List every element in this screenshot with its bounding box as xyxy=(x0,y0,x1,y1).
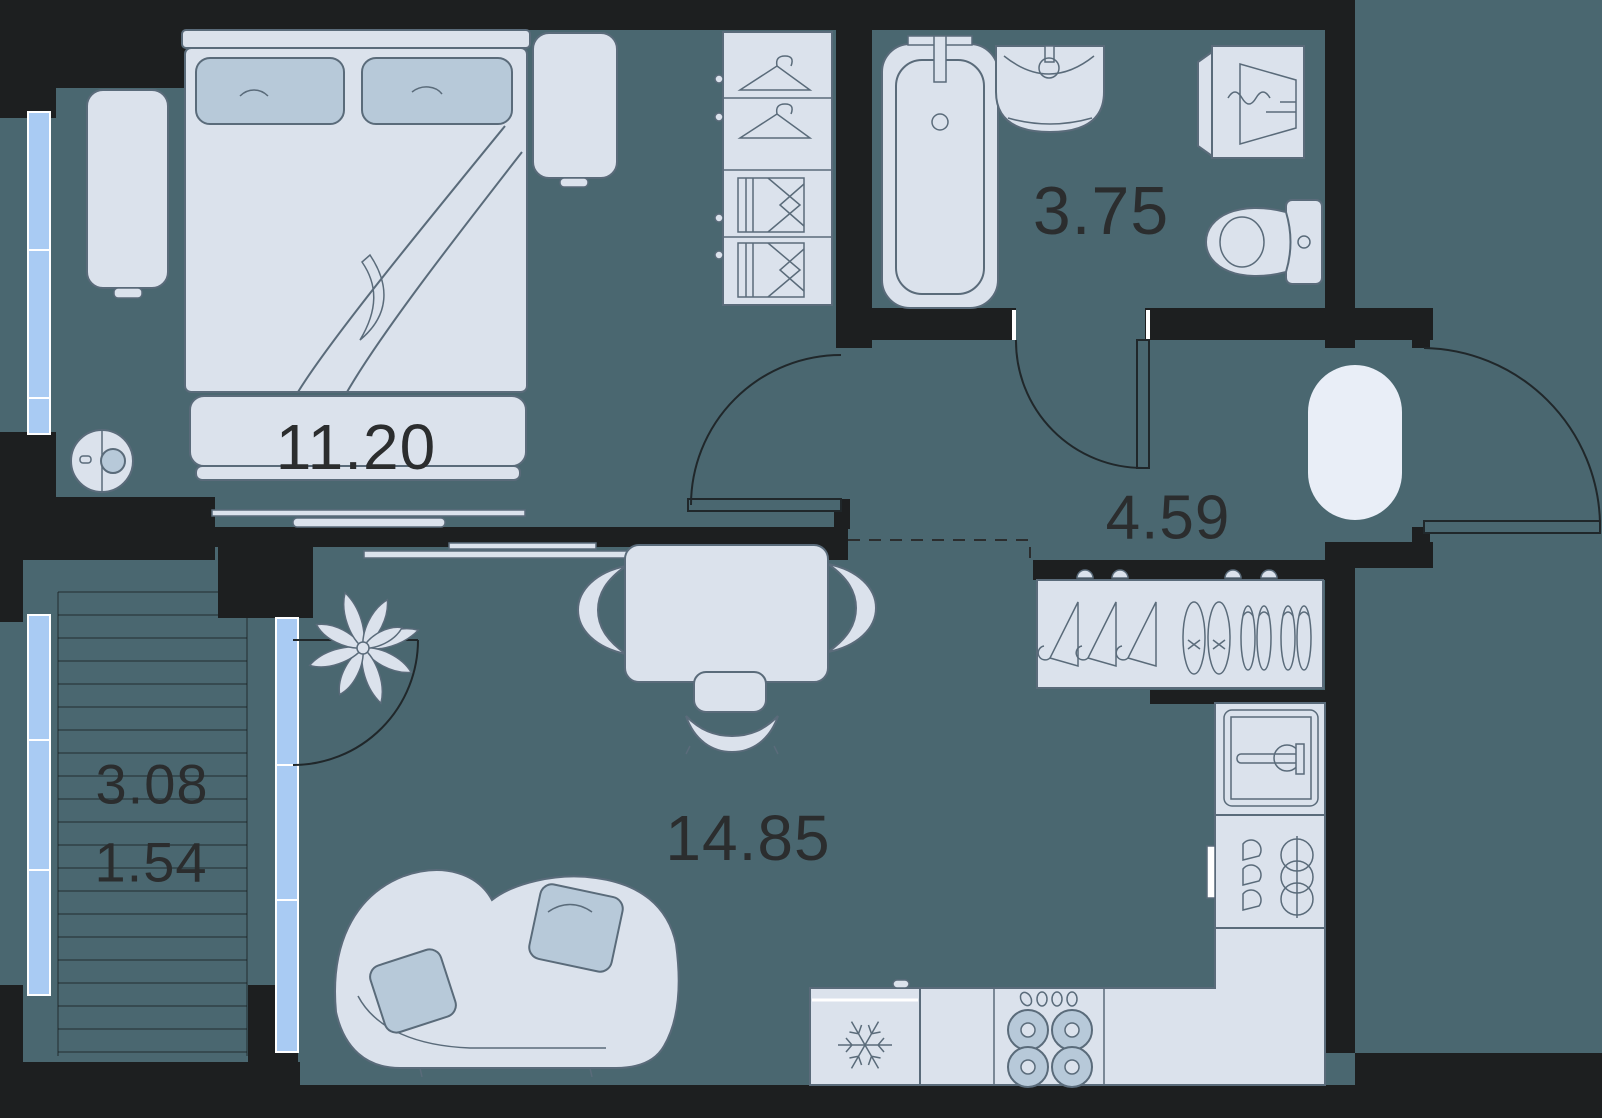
bedroom-door xyxy=(688,355,841,511)
bed-headboard xyxy=(182,30,530,48)
wardrobe xyxy=(715,32,832,305)
plant xyxy=(307,591,420,706)
entry-pouf xyxy=(1308,365,1402,520)
robot-vacuum xyxy=(71,430,133,492)
entrance-door xyxy=(1424,348,1600,533)
toilet xyxy=(1206,200,1322,284)
bedroom-window xyxy=(28,112,50,434)
dresser-left xyxy=(87,90,168,298)
area-label-bathroom: 3.75 xyxy=(1033,172,1169,250)
living-window-balcony-door xyxy=(276,618,298,1052)
chair xyxy=(828,564,876,652)
zone-divider-dashed-line xyxy=(848,540,1030,558)
nightstand-right xyxy=(533,33,617,187)
dining-table-set xyxy=(578,545,876,754)
fridge xyxy=(810,980,920,1085)
area-label-bedroom: 11.20 xyxy=(276,410,436,484)
dining-table xyxy=(625,545,828,682)
kitchen xyxy=(810,703,1325,1087)
chair xyxy=(686,672,778,754)
balcony-glazing xyxy=(28,615,50,995)
balcony-hatch-pattern xyxy=(58,592,247,1056)
bedroom-furniture xyxy=(71,30,832,527)
area-label-hallway: 4.59 xyxy=(1106,483,1231,554)
area-label-balcony-counted: 1.54 xyxy=(95,830,208,895)
coat-shoe-rack xyxy=(1037,570,1323,688)
oven-unit xyxy=(1215,703,1325,815)
bathtub xyxy=(882,36,998,308)
area-label-balcony-total: 3.08 xyxy=(96,752,209,817)
bathroom-sink xyxy=(996,46,1104,132)
dishes-cabinet xyxy=(1207,815,1325,928)
floor-plan-drawing xyxy=(0,0,1602,1118)
sofa xyxy=(335,870,679,1077)
bedroom-tv xyxy=(212,510,525,527)
chair xyxy=(578,566,626,654)
area-label-living-kitchen: 14.85 xyxy=(665,801,830,875)
washing-machine xyxy=(1198,46,1304,158)
bathroom-door xyxy=(1016,340,1149,468)
floor-plan: 11.20 3.75 4.59 14.85 3.08 1.54 xyxy=(0,0,1602,1118)
